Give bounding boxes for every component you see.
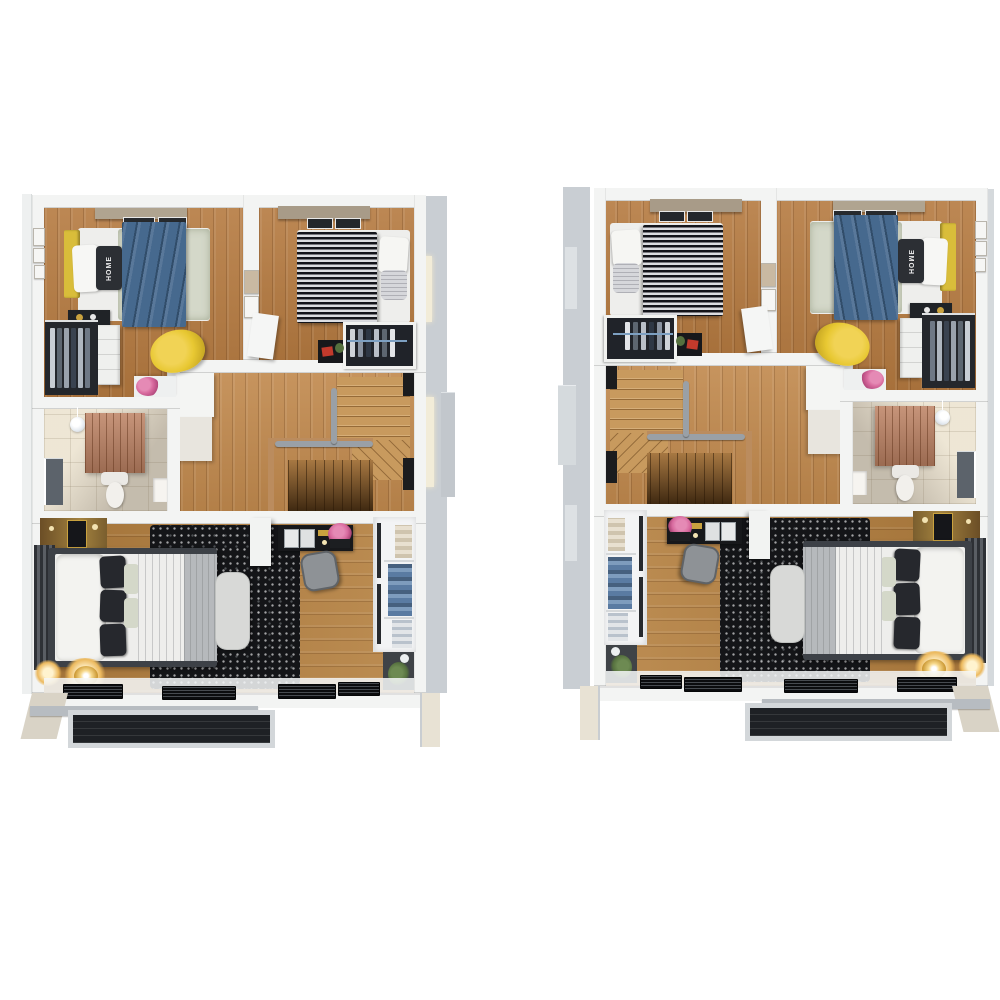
sauna-wood-panel [875, 406, 935, 466]
stair-descent [288, 460, 373, 511]
hanging-clothes [649, 322, 654, 350]
closet-rail [377, 523, 381, 578]
master-duvet [138, 554, 190, 661]
plan-interior: HOME [578, 185, 998, 745]
closet-rail [639, 577, 643, 637]
stair-descent [647, 453, 732, 504]
wall-shelf [403, 370, 414, 396]
closet-shelf-line [384, 560, 414, 562]
master-pillows-white [56, 554, 106, 661]
stairwell-trim [746, 431, 752, 504]
wall-picture [33, 248, 45, 263]
hanging-clothes [374, 329, 379, 357]
toilet-bowl [106, 482, 124, 508]
wall-shelf [606, 451, 617, 483]
wall-picture [975, 241, 987, 256]
bed-bench [770, 565, 805, 643]
flower-planter [670, 532, 690, 541]
sauna-wood-panel [85, 413, 145, 473]
desk-lamp-dot [322, 540, 327, 545]
radiator [897, 677, 957, 692]
stair-railing [647, 434, 745, 440]
hanging-clothes [657, 322, 662, 350]
master-pillow-dark [99, 624, 126, 657]
closet-vase [611, 647, 620, 656]
window-pane [335, 218, 361, 229]
dresser-lamp [49, 526, 54, 531]
hanging-clothes [625, 322, 630, 350]
hanging-clothes [78, 328, 83, 388]
wall-picture [975, 221, 987, 239]
wall-picture [975, 258, 986, 272]
hanging-clothes [64, 328, 69, 388]
desk-red-book [321, 346, 333, 356]
window-pane [659, 211, 685, 222]
stair-railing-post [683, 381, 689, 437]
bedroom1-dresser [900, 318, 922, 378]
bed-bench [215, 572, 250, 650]
bed1-pillow-home: HOME [898, 239, 924, 283]
desk-plant [676, 336, 685, 346]
toilet-bowl [896, 475, 914, 501]
closet-clothes-tan [608, 518, 625, 551]
hanging-clothes [951, 321, 956, 381]
hanging-clothes [641, 322, 646, 350]
hanging-clothes [57, 328, 62, 388]
closet-vase [400, 654, 409, 663]
bed1-pillow-home: HOME [96, 246, 122, 290]
bed2-pillow-white [378, 236, 409, 274]
master-pillow-sage [124, 598, 139, 628]
master-pillow-dark [893, 617, 920, 650]
wardrobe-rail [347, 340, 407, 342]
closet-rail [639, 516, 643, 571]
bed2-striped-blanket [297, 232, 377, 323]
desk-flowers-pink [136, 377, 160, 396]
bed1-blue-blanket [122, 222, 186, 327]
stair-railing-post [331, 388, 337, 444]
desk-tablet [284, 529, 299, 548]
side-wall-tab [565, 247, 577, 309]
master-door-cabinet [250, 518, 271, 566]
corner-post [580, 686, 600, 740]
wall-bathroom-top [840, 390, 988, 402]
wall-picture [34, 265, 45, 279]
hanging-clothes [930, 321, 935, 381]
desk-plant [335, 343, 344, 353]
master-pillows-white [914, 547, 964, 654]
closet-clothes-tan [395, 525, 412, 558]
window-pane [307, 218, 333, 229]
hanging-clothes [958, 321, 963, 381]
floor-plan-left: HOME [22, 192, 442, 752]
closet-shirts [608, 613, 628, 641]
dresser-lamp [92, 524, 98, 530]
side-wall-tab [565, 505, 577, 561]
wall-picture [761, 263, 776, 287]
hanging-clothes [358, 329, 363, 357]
bed1-pillow-white [920, 237, 948, 285]
stair-upper-flight [337, 377, 410, 447]
desk-tablet [705, 522, 720, 541]
master-duvet [830, 547, 882, 654]
bed2-striped-blanket [643, 225, 723, 316]
master-pillow-sage [881, 591, 896, 621]
bedroom1-dresser [98, 325, 120, 385]
hanging-clothes [382, 329, 387, 357]
wall-bathroom-top [32, 397, 180, 409]
side-wall-tab [441, 392, 455, 497]
closet-shelf-line [606, 610, 636, 612]
dresser-lamp [922, 517, 928, 523]
plan-interior: HOME [22, 192, 442, 752]
hanging-clothes [85, 328, 90, 388]
hanging-clothes [633, 322, 638, 350]
pendant-lamp [935, 410, 950, 425]
bed2-pillow-gray [613, 263, 639, 293]
flower-planter [330, 539, 350, 548]
balcony [745, 703, 952, 741]
hanging-clothes [71, 328, 76, 388]
closet-shelf-line [384, 617, 414, 619]
radiator [162, 686, 236, 700]
hanging-clothes [350, 329, 355, 357]
hall-cabinet-white [180, 373, 214, 417]
radiator [63, 684, 123, 699]
master-pillow-sage [881, 557, 896, 587]
bathroom-niche [153, 478, 167, 502]
closet-jeans-stack [388, 564, 412, 616]
floor-plan-right: HOME [578, 185, 998, 745]
dresser-mirror [933, 513, 953, 541]
wall-shelf [403, 458, 414, 490]
dresser-mirror [67, 520, 87, 548]
master-foot-throw [803, 547, 836, 654]
desk-lamp-dot [693, 533, 698, 538]
hanging-clothes [366, 329, 371, 357]
bathroom-niche [853, 471, 867, 495]
balcony-corner-wall [952, 686, 999, 732]
bathroom-glass-door [957, 451, 976, 498]
hall-cabinet-gray [808, 410, 844, 454]
desk-flowers-pink [860, 370, 884, 389]
hanging-clothes [937, 321, 942, 381]
balcony [68, 710, 275, 748]
hall-cabinet-gray [176, 417, 212, 461]
closet-jeans-stack [608, 557, 632, 609]
closet-shirts [392, 620, 412, 648]
desk-chair [299, 549, 341, 593]
balcony-corner-wall [21, 693, 68, 739]
hanging-clothes [390, 329, 395, 357]
wardrobe-rail [613, 333, 673, 335]
home-pillow-text: HOME [106, 256, 113, 281]
stair-upper-flight [610, 370, 683, 440]
master-pillow-dark [893, 548, 921, 581]
closet-rail [377, 584, 381, 644]
stairwell-trim [268, 438, 274, 511]
radiator [278, 684, 336, 699]
closet-shelf-line [606, 553, 636, 555]
wall-picture [33, 228, 45, 246]
master-pillow-sage [124, 564, 139, 594]
pendant-lamp [70, 417, 85, 432]
corner-post [420, 693, 440, 747]
master-pillow-dark [893, 583, 920, 616]
stair-railing [275, 441, 373, 447]
bathroom-glass-door [44, 458, 63, 505]
side-wall-tab [558, 385, 576, 465]
wall-picture [244, 270, 259, 294]
dresser-lamp [966, 519, 971, 524]
radiator [684, 677, 742, 692]
master-foot-throw [184, 554, 217, 661]
desk-tablet [721, 522, 736, 541]
hanging-clothes [665, 322, 670, 350]
bed2-pillow-gray [381, 270, 407, 300]
desk-chair [679, 542, 721, 586]
hanging-clothes [50, 328, 55, 388]
hanging-clothes [944, 321, 949, 381]
window-pane [687, 211, 713, 222]
radiator [338, 682, 380, 696]
radiator [784, 679, 858, 693]
radiator [640, 675, 682, 689]
hanging-clothes [965, 321, 970, 381]
hall-cabinet-white [806, 366, 840, 410]
master-pillow-dark [99, 555, 127, 588]
desk-tablet [300, 529, 315, 548]
wall-shelf [606, 363, 617, 389]
bed2-pillow-white [611, 229, 642, 267]
home-pillow-text: HOME [908, 249, 915, 274]
master-door-cabinet [749, 511, 770, 559]
bed1-blue-blanket [834, 215, 898, 320]
master-pillow-dark [99, 590, 126, 623]
desk-red-book [686, 339, 698, 349]
